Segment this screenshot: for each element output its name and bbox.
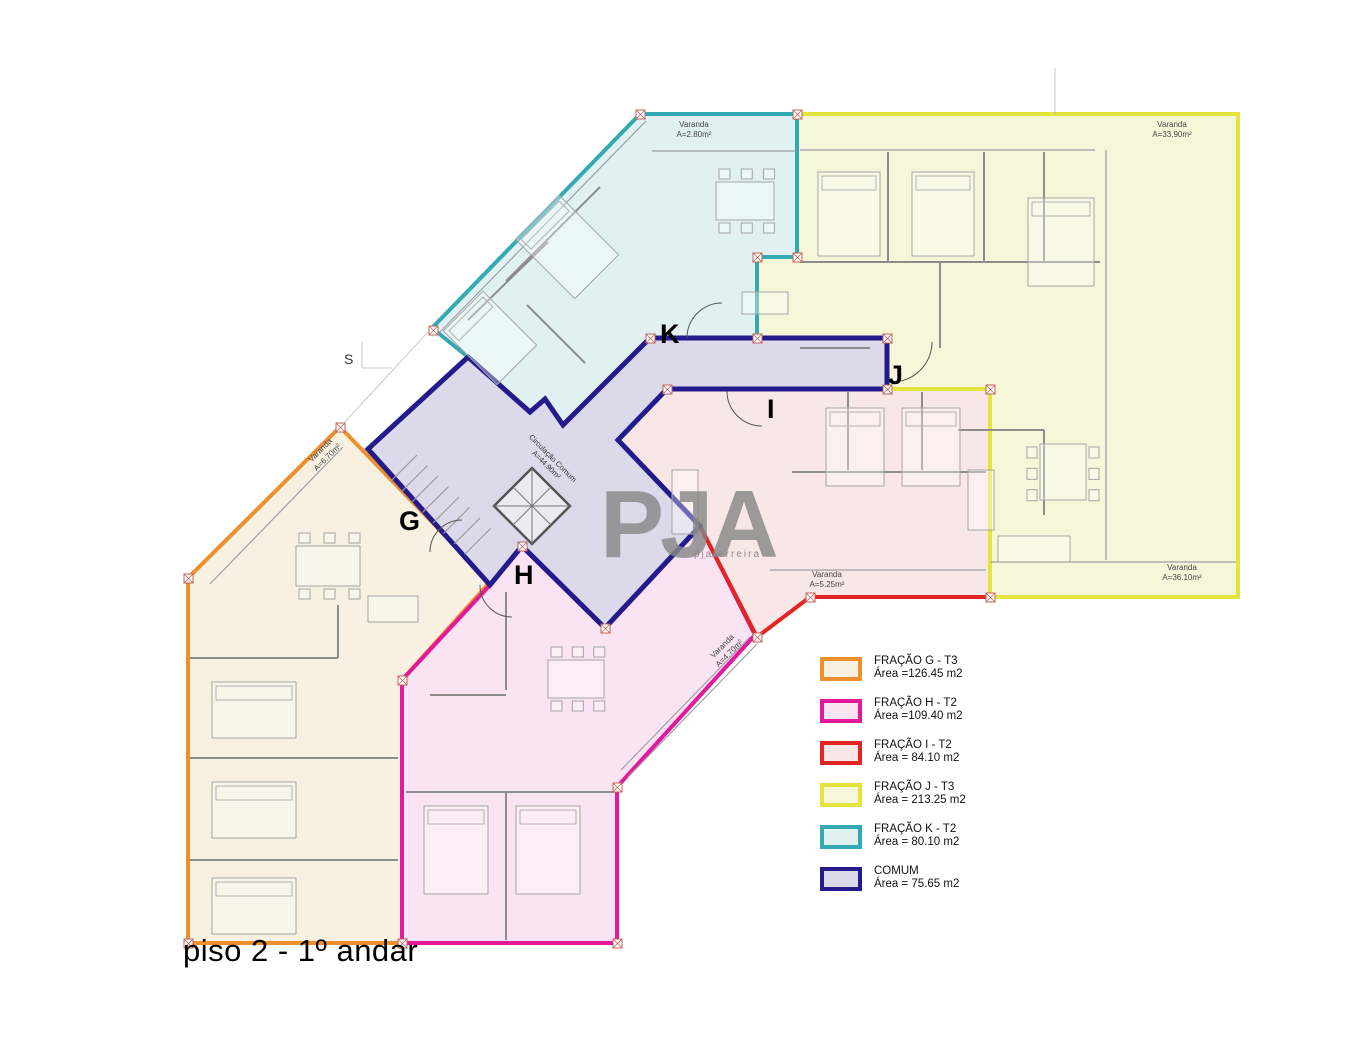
dining-table — [548, 660, 604, 698]
bed — [1028, 198, 1094, 286]
chair — [551, 701, 562, 711]
legend-row-I: FRAÇÃO I - T2 Área = 84.10 m2 — [820, 739, 1120, 762]
chair — [1089, 490, 1099, 501]
varanda-label-line: A=5.25m² — [810, 580, 845, 589]
legend-swatch-I — [820, 741, 862, 765]
varanda-label-line: A=33.90m² — [1152, 130, 1192, 139]
chair — [764, 169, 775, 179]
varanda-label-J: VarandaA=33.90m² — [1152, 120, 1192, 139]
legend-swatch-COMUM — [820, 867, 862, 891]
legend-label-I: FRAÇÃO I - T2 Área = 84.10 m2 — [874, 739, 959, 765]
sofa — [968, 470, 994, 530]
legend-label-J: FRAÇÃO J - T3 Área = 213.25 m2 — [874, 781, 966, 807]
chair — [299, 533, 310, 543]
chair — [764, 223, 775, 233]
legend-row-G: FRAÇÃO G - T3 Área =126.45 m2 — [820, 655, 1120, 678]
dining-table — [296, 546, 360, 586]
sofa — [368, 596, 418, 622]
legend-row-H: FRAÇÃO H - T2 Área =109.40 m2 — [820, 697, 1120, 720]
chair — [1089, 447, 1099, 458]
chair — [572, 701, 583, 711]
sofa — [742, 292, 788, 314]
legend-label-COMUM: COMUM Área = 75.65 m2 — [874, 865, 959, 891]
chair — [594, 647, 605, 657]
chair — [1027, 490, 1037, 501]
dining-table — [716, 182, 774, 220]
chair — [719, 223, 730, 233]
chair — [349, 589, 360, 599]
legend-row-J: FRAÇÃO J - T3 Área = 213.25 m2 — [820, 781, 1120, 804]
legend: FRAÇÃO G - T3 Área =126.45 m2FRAÇÃO H - … — [820, 655, 1120, 907]
watermark-logo: PJA — [600, 471, 776, 578]
legend-swatch-K — [820, 825, 862, 849]
legend-row-K: FRAÇÃO K - T2 Área = 80.10 m2 — [820, 823, 1120, 846]
bed — [212, 878, 296, 934]
bed — [912, 172, 974, 256]
chair — [324, 589, 335, 599]
chair — [1027, 447, 1037, 458]
varanda-label-K: VarandaA=2.80m² — [677, 120, 712, 139]
sofa — [998, 536, 1070, 562]
varanda-label-line: Varanda — [812, 570, 842, 579]
bed — [516, 806, 580, 894]
chair — [1027, 468, 1037, 479]
section-marker: S — [344, 351, 353, 367]
bed — [826, 408, 884, 486]
bed — [818, 172, 880, 256]
fraction-H-letter: H — [514, 560, 534, 590]
chair — [594, 701, 605, 711]
varanda-label-I: VarandaA=5.25m² — [810, 570, 845, 589]
varanda-label-line: Varanda — [679, 120, 709, 129]
floorplan-page: GVarandaA=6.70m²HVarandaA=4.70m²IVaranda… — [0, 0, 1362, 1050]
varanda-label-line: Varanda — [1157, 120, 1187, 129]
varanda-label-line: Varanda — [1167, 563, 1197, 572]
dining-table — [1040, 444, 1086, 500]
varanda-label-line: A=36.10m² — [1162, 573, 1202, 582]
chair — [349, 533, 360, 543]
fraction-G-letter: G — [399, 506, 420, 536]
legend-row-COMUM: COMUM Área = 75.65 m2 — [820, 865, 1120, 888]
fraction-I-letter: I — [767, 394, 775, 424]
varanda-label-J: VarandaA=36.10m² — [1162, 563, 1202, 582]
bed — [212, 782, 296, 838]
chair — [324, 533, 335, 543]
fraction-J-letter: J — [888, 360, 903, 390]
legend-swatch-G — [820, 657, 862, 681]
chair — [299, 589, 310, 599]
legend-swatch-J — [820, 783, 862, 807]
chair — [719, 169, 730, 179]
varanda-label-line: A=2.80m² — [677, 130, 712, 139]
watermark-subtext: pjaferreira — [694, 549, 761, 560]
legend-swatch-H — [820, 699, 862, 723]
legend-label-K: FRAÇÃO K - T2 Área = 80.10 m2 — [874, 823, 959, 849]
bed — [902, 408, 960, 486]
chair — [572, 647, 583, 657]
legend-label-G: FRAÇÃO G - T3 Área =126.45 m2 — [874, 655, 963, 681]
bed — [424, 806, 488, 894]
chair — [551, 647, 562, 657]
legend-label-H: FRAÇÃO H - T2 Área =109.40 m2 — [874, 697, 963, 723]
page-title: piso 2 - 1º andar — [183, 933, 418, 969]
chair — [741, 223, 752, 233]
chair — [1089, 468, 1099, 479]
chair — [741, 169, 752, 179]
fraction-K-letter: K — [660, 319, 680, 349]
floorplan-drawing: GVarandaA=6.70m²HVarandaA=4.70m²IVaranda… — [0, 0, 1362, 1050]
bed — [212, 682, 296, 738]
